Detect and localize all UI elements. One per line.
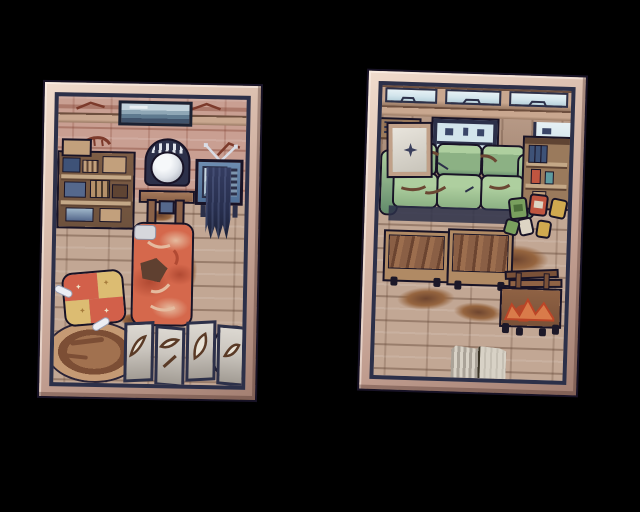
shelf-plank [526, 162, 567, 167]
book-page-light [480, 346, 507, 379]
vanity-drawer [161, 202, 173, 212]
orange-cloth [503, 291, 558, 323]
cart-bed [501, 289, 560, 327]
clutter-books [83, 161, 97, 172]
bone-sketch [157, 328, 182, 384]
bone-sketch [188, 323, 213, 378]
patch [65, 299, 91, 325]
sleeping-bag-bed [132, 224, 192, 325]
screen-panel [154, 325, 185, 388]
cart-rack-bar [507, 271, 557, 278]
window-pane-mark [445, 128, 453, 135]
bench-top [389, 235, 444, 269]
leaning-picture [388, 124, 430, 176]
cans-pile [506, 193, 569, 245]
bench-leg [433, 278, 440, 287]
bedroom-scene [49, 92, 251, 390]
screen-panel [216, 324, 247, 387]
clutter-shelf [58, 152, 133, 227]
wooden-bench [385, 231, 448, 281]
bed-swirls [132, 224, 192, 325]
bookshelf-top [525, 138, 570, 145]
tv-stand-leg [200, 205, 205, 217]
living-room-scene [369, 81, 575, 385]
clutter-books [91, 181, 109, 197]
bench-top [453, 234, 508, 272]
star-icon [404, 143, 418, 157]
cloud-outline [447, 95, 499, 108]
shelf-plank [61, 200, 131, 205]
can [537, 221, 550, 237]
clutter-box [100, 209, 120, 221]
can-label [534, 201, 544, 209]
cart-wheel [502, 323, 509, 333]
window-pane-mark [542, 128, 551, 134]
cart-wheel [516, 327, 523, 335]
painting-cloud [130, 106, 148, 109]
wooden-cart [499, 271, 563, 337]
book-spine [535, 146, 541, 162]
screen: { "window": { "width": 640, "height": 51… [0, 0, 640, 512]
shelf-can [532, 170, 540, 183]
can-label [513, 204, 523, 212]
clutter-box [103, 157, 125, 172]
can-box [530, 195, 547, 215]
cloud-outline [511, 97, 566, 110]
rug-streak [66, 353, 88, 359]
open-book [450, 345, 506, 379]
cloud-outline [387, 93, 435, 106]
dark-drape [205, 167, 231, 239]
clutter-tray [66, 208, 92, 220]
can [505, 220, 519, 235]
transom-window [509, 91, 568, 108]
bone-sketch [219, 328, 244, 384]
landscape-painting [118, 100, 192, 126]
window-pane-mark [463, 128, 468, 136]
picture-frame [359, 71, 586, 396]
vanity-leg [148, 201, 154, 226]
picture-frame [39, 82, 261, 400]
shelf-can [546, 172, 553, 183]
rug-streak [70, 337, 104, 346]
transom-window [385, 87, 437, 104]
bone-sketch [126, 324, 151, 379]
bench-leg [454, 280, 461, 289]
clutter-box [63, 158, 79, 171]
window-pane-mark [477, 129, 484, 136]
vanity-mirror [140, 140, 194, 227]
pet-cushion [63, 271, 125, 326]
transom-window [445, 89, 501, 106]
shelf-plank [61, 174, 131, 179]
bedroom-postcard[interactable] [39, 82, 261, 400]
vanity-leg [176, 202, 182, 227]
screen-panel [123, 321, 154, 383]
screen-panel [185, 320, 216, 382]
clutter-box [65, 182, 85, 196]
can-box [550, 200, 566, 218]
clutter-box [113, 185, 127, 197]
patch [63, 273, 99, 302]
folding-screen [123, 314, 251, 386]
book-spine [529, 146, 535, 162]
cart-wheel [552, 325, 559, 335]
shelf-top-box [64, 140, 90, 154]
cart-wheel [539, 328, 546, 336]
bench-leg [390, 276, 397, 285]
book-spine [541, 146, 547, 162]
patch [96, 271, 122, 299]
tv-stand-leg [232, 206, 237, 218]
living-room-postcard[interactable] [359, 71, 586, 396]
television [192, 143, 246, 240]
can [519, 219, 533, 235]
shelf-plank [525, 184, 566, 189]
can-box [510, 199, 527, 219]
